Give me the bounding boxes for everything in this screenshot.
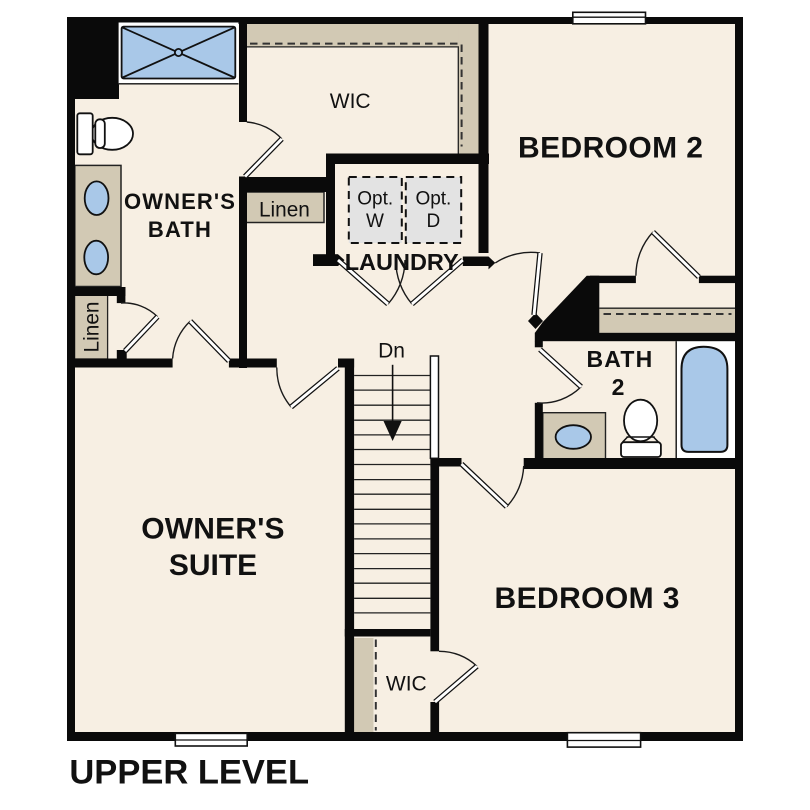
svg-text:Opt.: Opt. xyxy=(415,189,451,210)
svg-text:Linen: Linen xyxy=(259,199,310,222)
svg-text:WIC: WIC xyxy=(330,90,371,113)
svg-text:UPPER LEVEL: UPPER LEVEL xyxy=(69,753,309,791)
svg-text:SUITE: SUITE xyxy=(169,549,257,582)
svg-text:BEDROOM 2: BEDROOM 2 xyxy=(518,132,703,165)
svg-text:OWNER'S: OWNER'S xyxy=(141,512,285,545)
svg-text:Opt.: Opt. xyxy=(357,189,393,210)
svg-text:BATH: BATH xyxy=(148,217,212,242)
svg-text:D: D xyxy=(427,211,441,232)
svg-text:BATH: BATH xyxy=(587,346,654,372)
svg-text:2: 2 xyxy=(612,374,625,400)
svg-text:LAUNDRY: LAUNDRY xyxy=(345,249,459,275)
svg-text:BEDROOM 3: BEDROOM 3 xyxy=(495,582,680,615)
svg-text:WIC: WIC xyxy=(386,673,427,696)
svg-text:W: W xyxy=(366,211,384,232)
svg-text:OWNER'S: OWNER'S xyxy=(124,189,236,214)
svg-text:Dn: Dn xyxy=(378,340,405,363)
svg-text:Linen: Linen xyxy=(81,302,104,353)
